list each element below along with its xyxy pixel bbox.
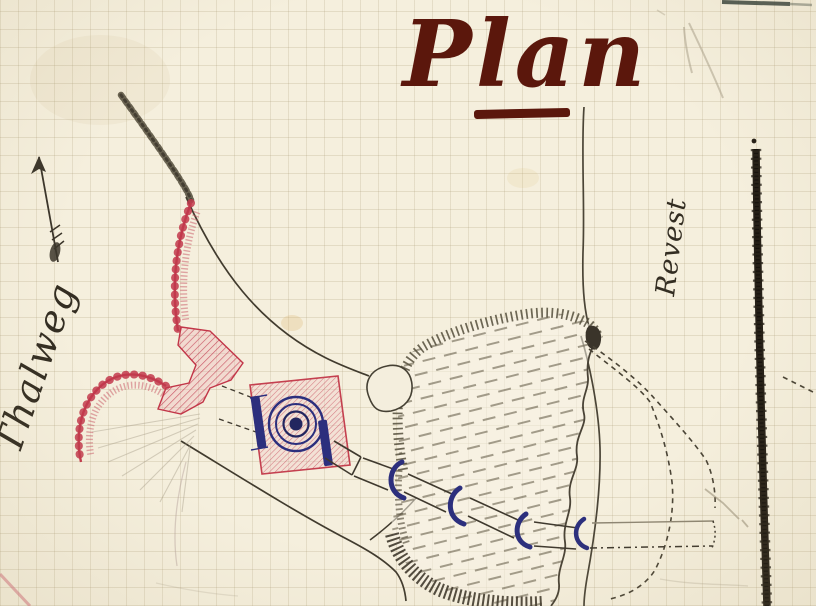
boulder-outline (367, 365, 412, 411)
barrage-wall (158, 327, 243, 414)
pipe-dashdot-bottom (590, 546, 712, 548)
pencil-check-top-right (684, 27, 692, 73)
plan-drawing: Plan (0, 0, 816, 606)
rubble-line (121, 95, 191, 200)
earth-mound (302, 296, 699, 606)
scanned-plan-page: Plan (0, 0, 816, 606)
title-group: Plan (400, 0, 650, 119)
pipe-dotted-top (592, 521, 714, 523)
red-ravine-edges (79, 203, 197, 462)
corner-pink-mark (0, 574, 30, 606)
valve-center (290, 418, 303, 431)
revetment-line (752, 139, 767, 606)
pipe-collar-4 (576, 519, 587, 548)
pencil-slope-hachures (92, 414, 238, 596)
page-title: Plan (400, 0, 650, 108)
dashed-spill-outline (585, 341, 815, 599)
pencil-marks (657, 10, 748, 586)
pipe-end-cap (712, 521, 715, 548)
title-underline (474, 108, 570, 119)
revest-label: Revest (650, 196, 693, 298)
arrowhead-icon (31, 156, 46, 174)
sluice-chamber (250, 376, 350, 474)
thalweg-label: Thalweg (0, 276, 85, 459)
top-edge-smudge (722, 2, 790, 4)
thalweg-arrow (31, 156, 64, 263)
